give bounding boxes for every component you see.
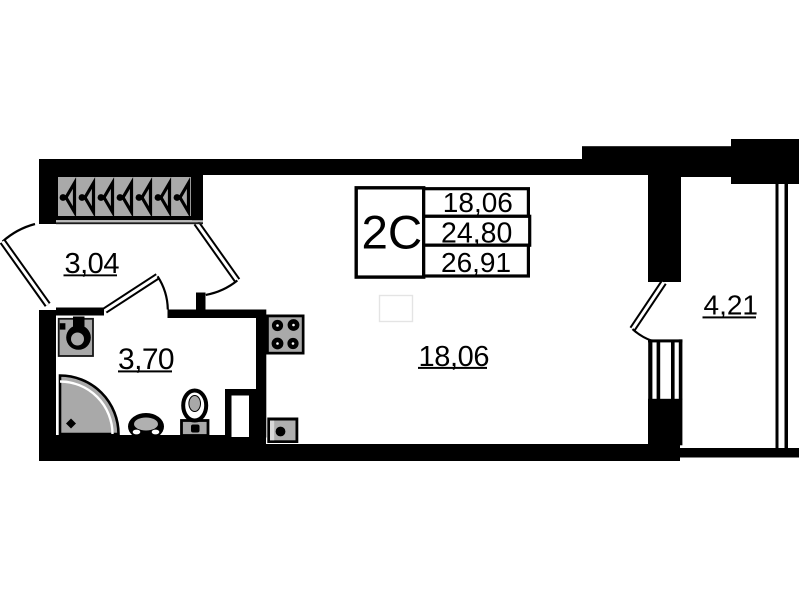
svg-text:18,06: 18,06 xyxy=(443,187,513,218)
svg-text:2C: 2C xyxy=(362,207,423,260)
svg-text:4,21: 4,21 xyxy=(704,289,759,320)
svg-text:24,80: 24,80 xyxy=(441,218,512,250)
svg-text:26,91: 26,91 xyxy=(441,247,511,278)
